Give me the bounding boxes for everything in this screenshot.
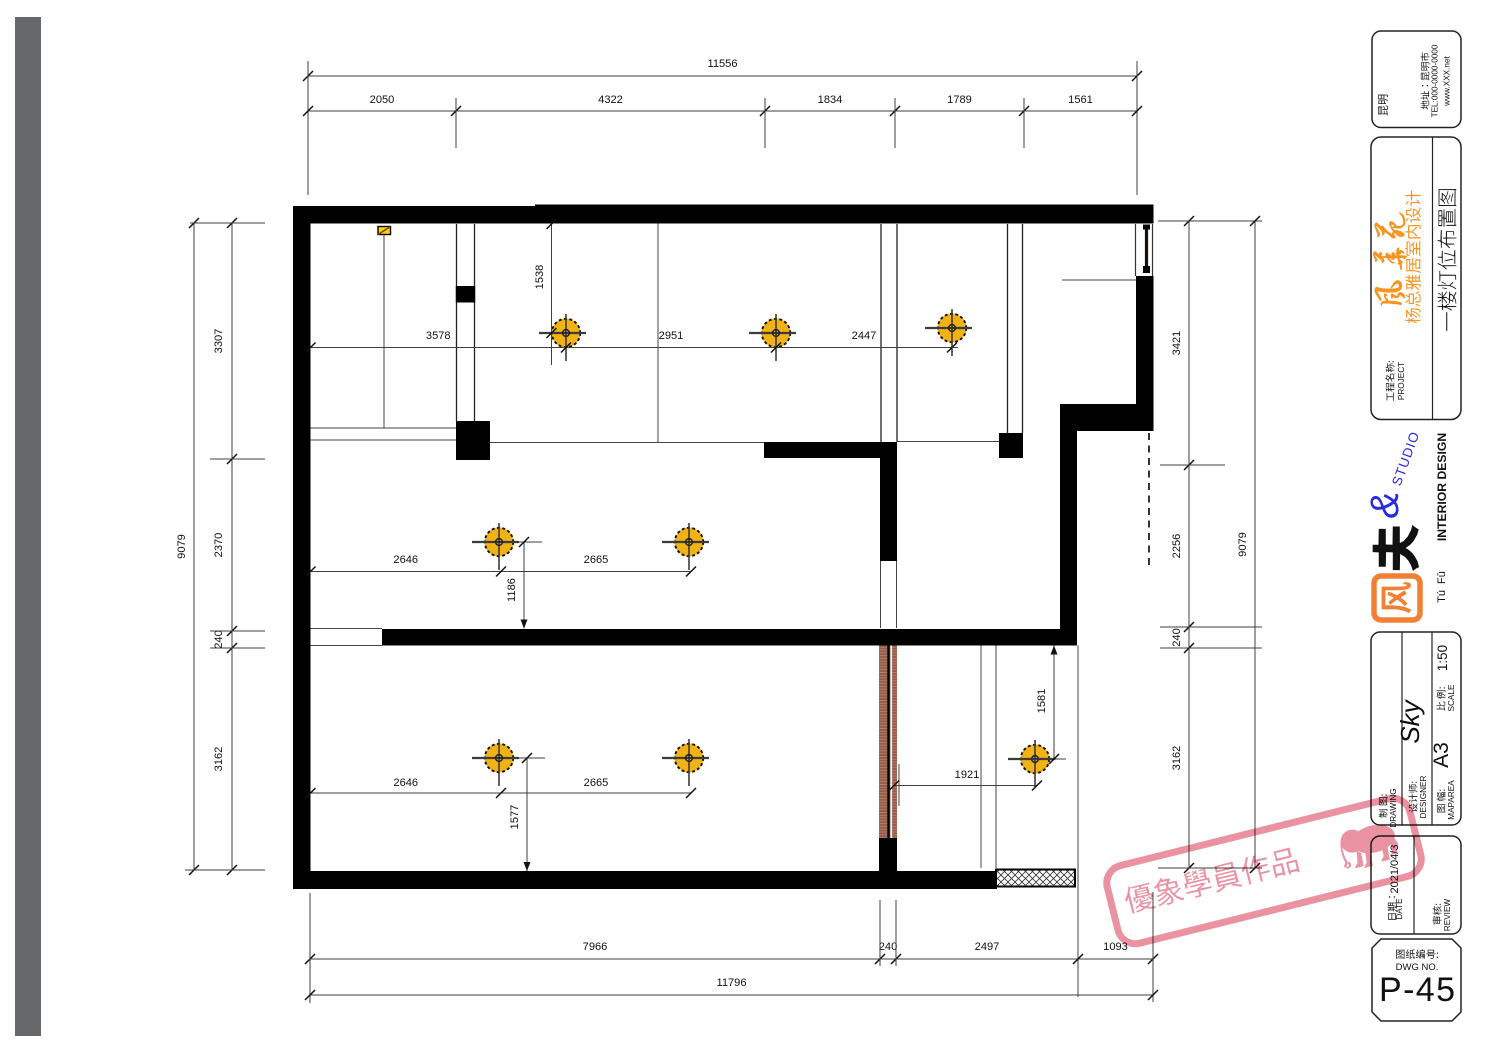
svg-text:PROJECT: PROJECT [1397,362,1406,400]
svg-text:&: & [1363,492,1407,519]
svg-text:11796: 11796 [716,977,746,989]
svg-text:DESIGNER: DESIGNER [1419,776,1428,819]
svg-text:2646: 2646 [393,554,418,566]
svg-text:3421: 3421 [1171,331,1183,356]
svg-text:7966: 7966 [583,941,608,953]
svg-text:P-45: P-45 [1379,971,1455,1009]
svg-text:REVIEW: REVIEW [1443,899,1452,932]
svg-text:Tú Fū: Tú Fū [1436,571,1448,603]
svg-text:2951: 2951 [659,330,684,342]
svg-text:2665: 2665 [584,777,609,789]
svg-text:DRAWING: DRAWING [1389,788,1398,827]
svg-text:Sky: Sky [1395,698,1425,743]
svg-text:1789: 1789 [947,94,972,106]
svg-text:3307: 3307 [213,329,225,354]
svg-text:2256: 2256 [1171,534,1183,559]
svg-text:INTERIOR DESIGN: INTERIOR DESIGN [1435,433,1449,541]
svg-text:2497: 2497 [975,941,1000,953]
svg-text:2370: 2370 [213,533,225,558]
svg-text:2050: 2050 [370,94,395,106]
svg-text:1561: 1561 [1068,94,1093,106]
svg-text:4322: 4322 [598,94,623,106]
svg-text:1577: 1577 [509,805,521,830]
svg-text:240: 240 [1171,628,1183,647]
svg-text:11556: 11556 [707,58,737,70]
svg-text:240: 240 [879,941,898,953]
svg-text:1:50: 1:50 [1435,645,1450,671]
svg-text:9079: 9079 [1237,532,1249,557]
svg-text:TEL:000-0000-0000: TEL:000-0000-0000 [1431,44,1440,117]
svg-text:3162: 3162 [213,747,225,772]
svg-text:SCALE: SCALE [1447,684,1456,711]
svg-text:DATE: DATE [1395,898,1404,920]
svg-text:1921: 1921 [955,769,980,781]
svg-text:9079: 9079 [176,534,188,559]
svg-text:www.XXX.net: www.XXX.net [1443,55,1452,106]
svg-text:1538: 1538 [534,265,546,290]
svg-text:2646: 2646 [393,777,418,789]
svg-text:240: 240 [213,630,225,649]
svg-text:3162: 3162 [1171,746,1183,771]
svg-text:MAPAREA: MAPAREA [1447,780,1456,820]
svg-text:3578: 3578 [426,330,451,342]
svg-text:2447: 2447 [852,330,877,342]
svg-text:1186: 1186 [506,578,518,602]
svg-text:1834: 1834 [818,94,843,106]
svg-text:1581: 1581 [1036,689,1048,714]
svg-text:2665: 2665 [584,554,609,566]
svg-text:A3: A3 [1430,742,1453,768]
